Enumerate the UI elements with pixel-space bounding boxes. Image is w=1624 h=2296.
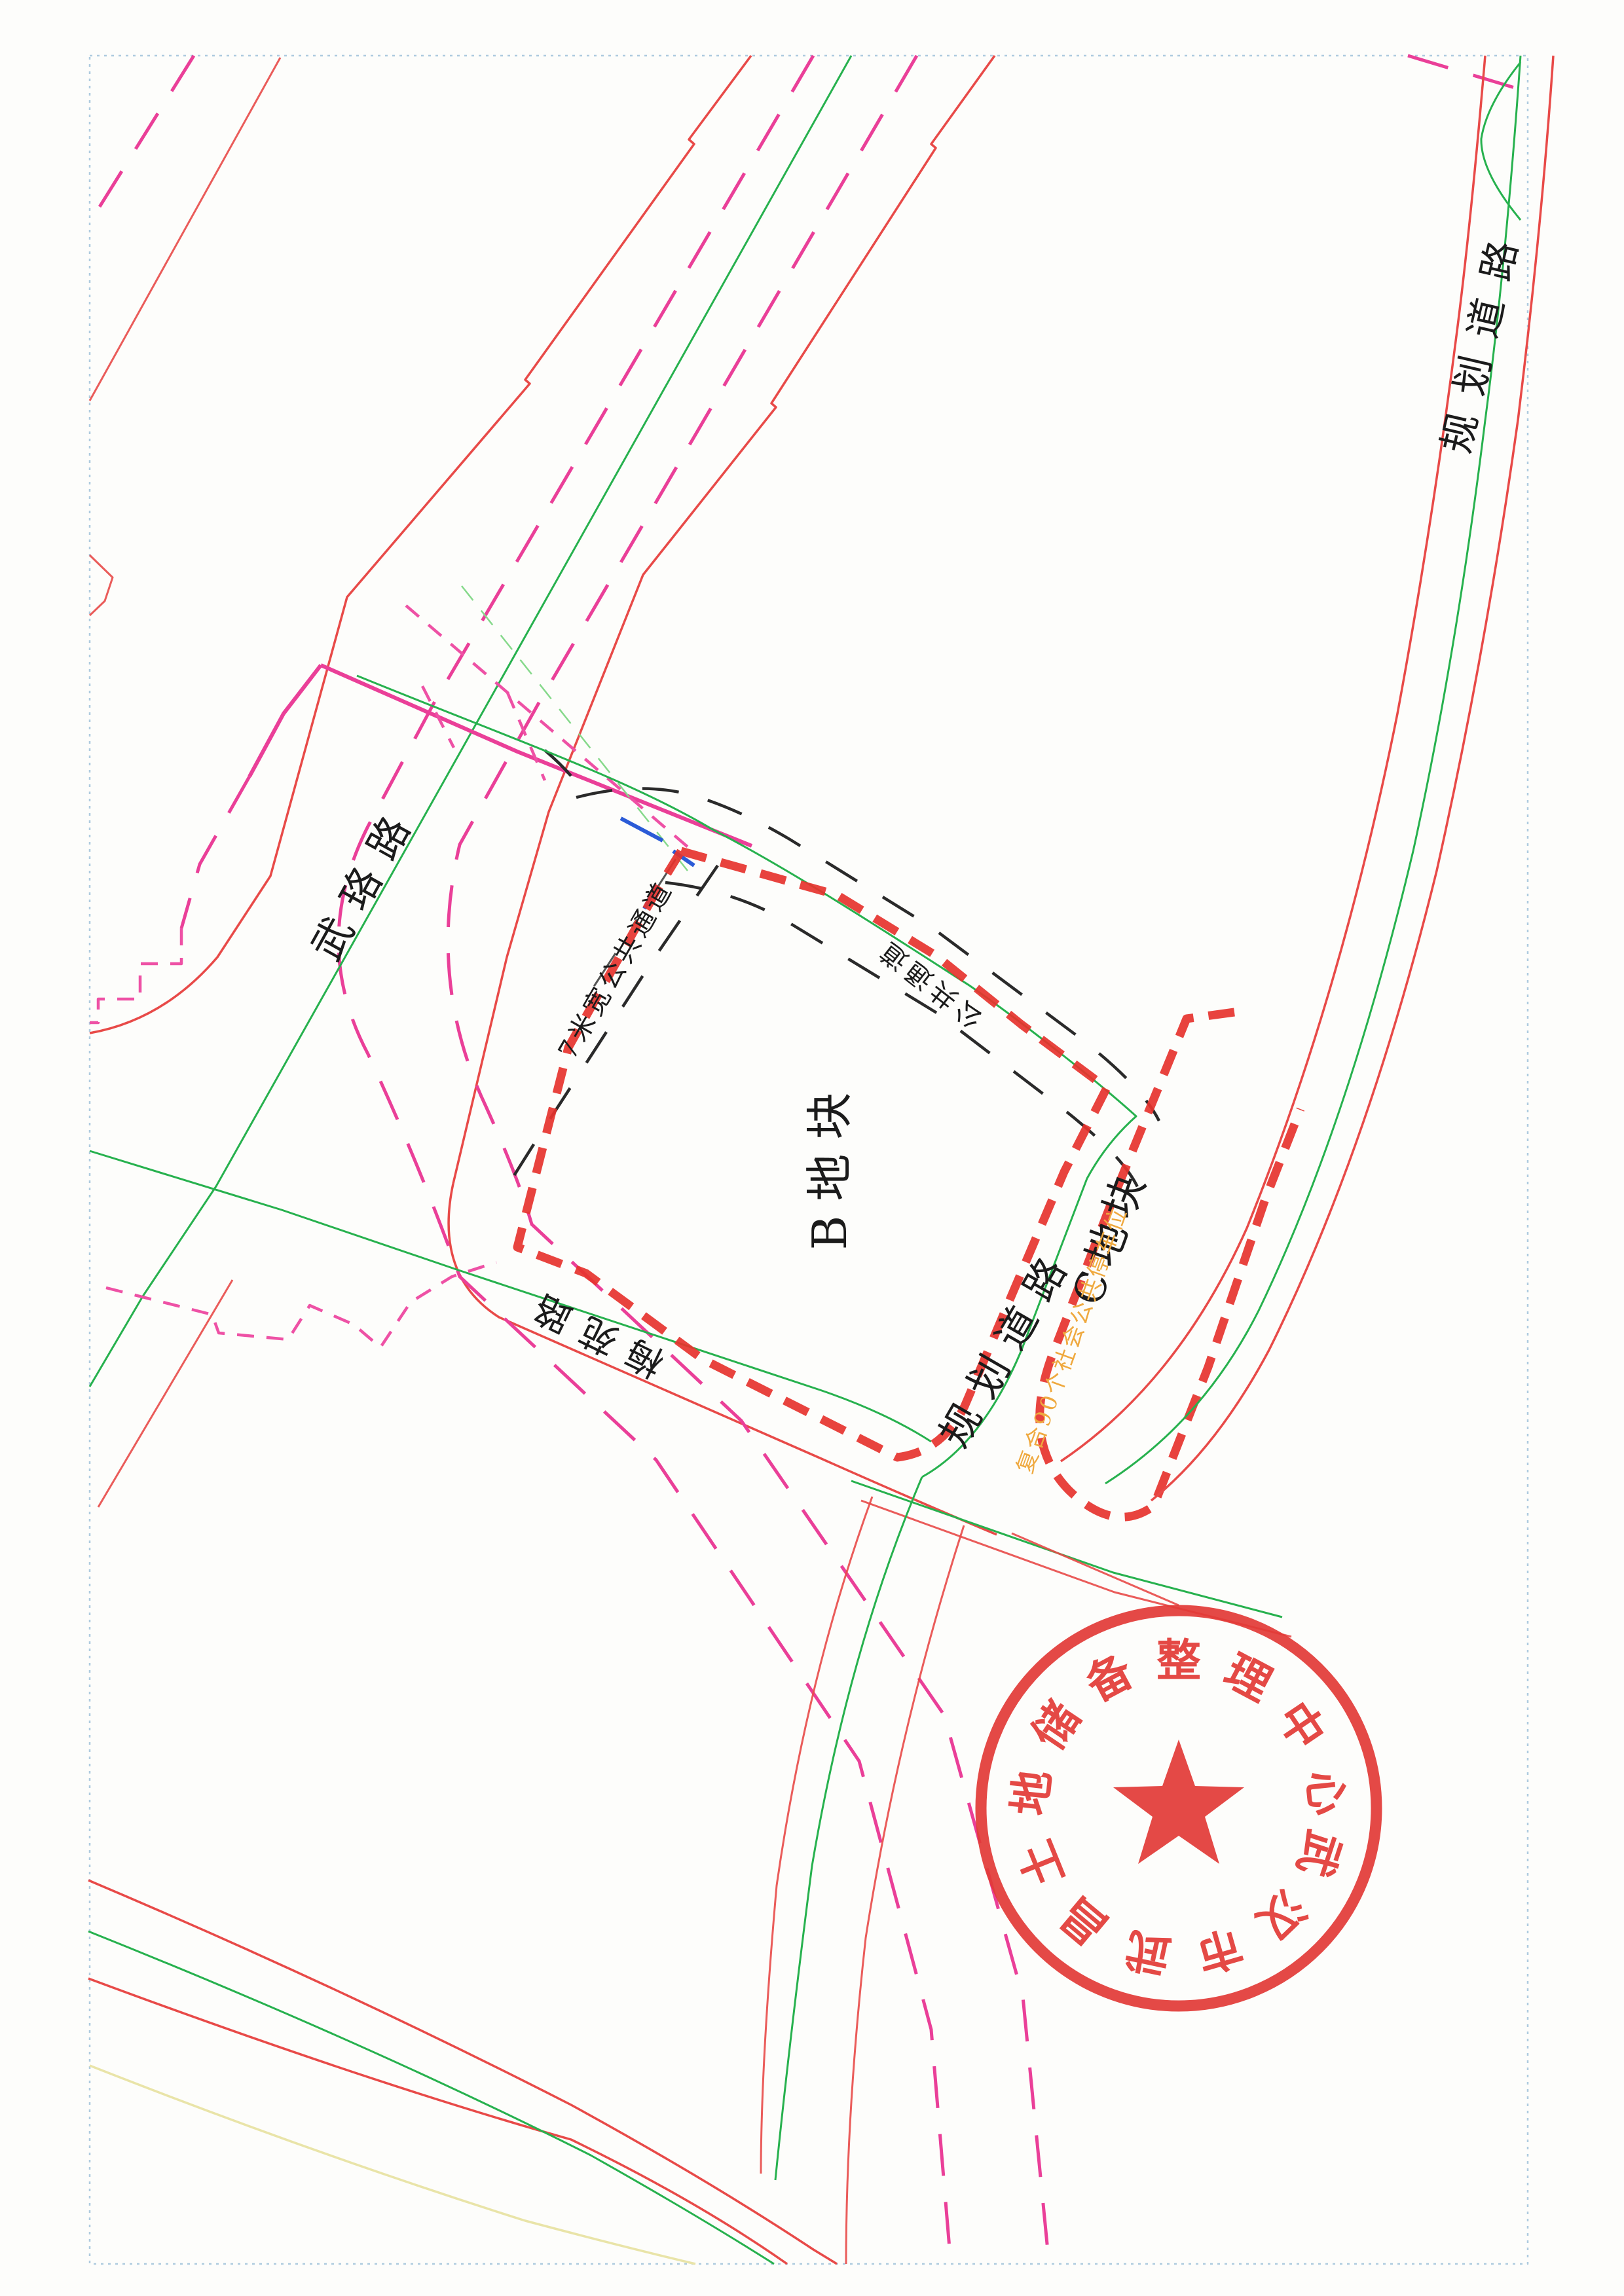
bottom-road-yellow-line	[90, 2066, 695, 2264]
junction-red-line-short	[1012, 1533, 1179, 1605]
southwest-branch-red-line	[98, 1280, 232, 1507]
official-stamp: 武汉市武昌土地储备整理中心	[981, 1611, 1376, 2006]
public-passage-7m-label: 7米宽公共通道	[553, 875, 680, 1065]
pink-dashed-top-right	[1408, 56, 1528, 92]
red-line-top-left	[90, 58, 280, 401]
light-green-dashed-line	[462, 586, 688, 871]
meiyuan-road-south-edge	[449, 1184, 997, 1535]
stamp-star-icon	[1113, 1740, 1244, 1864]
stamp-character: 地	[1004, 1768, 1061, 1817]
parcel-b-label: B地块	[802, 1078, 857, 1250]
pink-dashed-north-of-parcel	[406, 606, 694, 852]
stamp-character: 昌	[1050, 1887, 1118, 1956]
pink-parcel-solid-edge-b	[249, 665, 321, 776]
pink-stepped-boundary-upper	[90, 928, 181, 1023]
stamp-character: 中	[1266, 1693, 1335, 1759]
pink-parcel-dashed-edge	[181, 776, 249, 928]
wuluo-road-label: 武珞路	[302, 793, 428, 968]
planning-dashed-line-west	[339, 56, 951, 2264]
junction-to-bottom-centerline	[775, 1477, 922, 2180]
stamp-character: 土	[1010, 1833, 1075, 1894]
bottom-curved-road	[88, 1477, 964, 2264]
stamp-character: 储	[1022, 1693, 1090, 1759]
stamp-character: 备	[1078, 1645, 1142, 1712]
planning-map-canvas: 武珞路 梅苑路 B地块 C地块 规划道路 规划道路 7米宽公共通道 公共通道 复…	[0, 0, 1624, 2296]
red-step-left-border	[90, 555, 113, 615]
planned-road-right-label: 规划道路	[1433, 217, 1531, 458]
passage-7m-east-dashed-line	[499, 866, 718, 1199]
stamp-character: 心	[1297, 1768, 1354, 1817]
scanned-planning-map-page: 武珞路 梅苑路 B地块 C地块 规划道路 规划道路 7米宽公共通道 公共通道 复…	[0, 0, 1624, 2296]
bottom-road-edge-south	[88, 1978, 787, 2264]
pink-dashed-cross-b	[507, 693, 545, 780]
junction-to-bottom-red-east	[846, 1525, 964, 2264]
pink-dashed-top-left	[90, 56, 194, 223]
stamp-character: 市	[1190, 1918, 1247, 1981]
stamp-character: 理	[1216, 1645, 1280, 1712]
public-passage-lines	[357, 676, 1159, 1477]
stamp-character: 武	[1287, 1825, 1350, 1883]
pink-stepped-boundary-lower	[106, 1262, 496, 1347]
map-labels: 武珞路 梅苑路 B地块 C地块 规划道路 规划道路 7米宽公共通道 公共通道 复…	[302, 217, 1531, 1476]
stamp-character: 整	[1156, 1635, 1201, 1687]
stamp-character: 武	[1121, 1922, 1175, 1982]
stamp-character: 汉	[1246, 1880, 1315, 1949]
wuluo-road-corridor	[90, 56, 1049, 2264]
passage-south-dashed-line	[665, 883, 1139, 1192]
bottom-road-edge-north	[88, 1880, 837, 2264]
